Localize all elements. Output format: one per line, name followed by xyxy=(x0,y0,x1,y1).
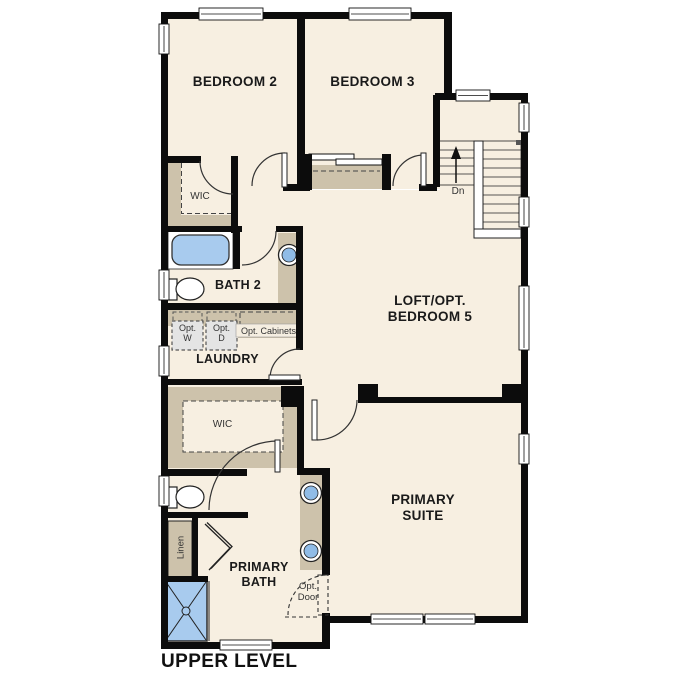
page-title: UPPER LEVEL xyxy=(161,651,297,673)
opt-door-label: Opt. Door xyxy=(290,582,326,604)
bedroom2-label: BEDROOM 2 xyxy=(175,74,295,90)
sink-primary-1 xyxy=(301,483,322,504)
shower xyxy=(165,581,209,641)
bedroom3-label: BEDROOM 3 xyxy=(315,74,430,90)
toilet-bath2 xyxy=(166,278,204,300)
wic-primary-label: WIC xyxy=(200,419,245,431)
opt-washer-label: Opt. W xyxy=(172,323,203,344)
linen-label: Linen xyxy=(177,525,188,569)
floor-plan: BEDROOM 2 BEDROOM 3 WIC BATH 2 Opt. W Op… xyxy=(0,0,687,687)
opt-cabinets-label: Opt. Cabinets xyxy=(236,326,301,336)
bath2-label: BATH 2 xyxy=(203,278,273,293)
floor-plan-drawing xyxy=(0,0,687,687)
sink-primary-2 xyxy=(301,541,322,562)
laundry-label: LAUNDRY xyxy=(185,352,270,367)
loft-label: LOFT/OPT. BEDROOM 5 xyxy=(370,293,490,325)
opt-dryer-label: Opt. D xyxy=(206,323,237,344)
bathtub xyxy=(172,235,229,265)
stair-down-label: Dn xyxy=(444,186,472,198)
toilet-primary xyxy=(166,486,204,508)
wic-bedroom2-label: WIC xyxy=(180,191,220,203)
primary-suite-label: PRIMARY SUITE xyxy=(373,492,473,524)
